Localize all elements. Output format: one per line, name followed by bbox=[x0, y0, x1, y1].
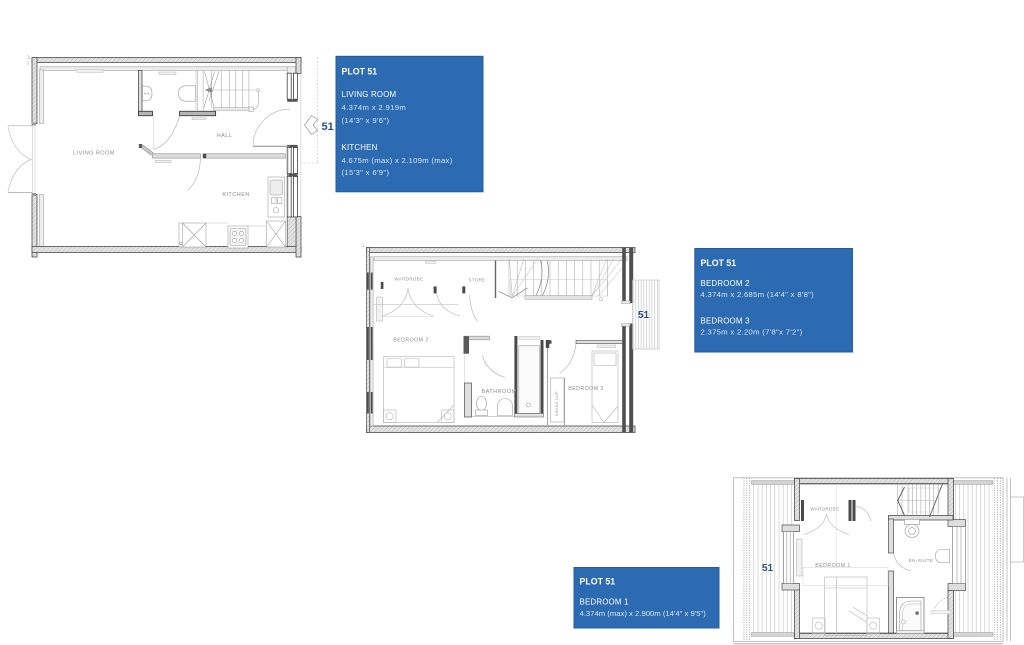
svg-text:KITCHEN: KITCHEN bbox=[222, 192, 249, 198]
svg-text:WARDROBE: WARDROBE bbox=[811, 507, 840, 512]
svg-text:EN-SUITE: EN-SUITE bbox=[909, 558, 934, 563]
svg-text:PLOT 51: PLOT 51 bbox=[342, 67, 378, 77]
svg-text:BATHROOM: BATHROOM bbox=[481, 389, 516, 395]
svg-text:KITCHEN: KITCHEN bbox=[342, 143, 378, 152]
svg-text:STORE: STORE bbox=[468, 278, 485, 283]
svg-text:(14'3" x 9'6"): (14'3" x 9'6") bbox=[342, 116, 390, 125]
svg-text:HALL: HALL bbox=[217, 133, 233, 139]
svg-text:LIVING ROOM: LIVING ROOM bbox=[342, 90, 397, 99]
svg-text:51: 51 bbox=[638, 310, 650, 321]
svg-text:4.374m x 2.685m (14'4" x 8'8"): 4.374m x 2.685m (14'4" x 8'8") bbox=[701, 290, 815, 299]
svg-text:4.374m x 2.919m: 4.374m x 2.919m bbox=[342, 103, 407, 112]
svg-text:WARDROBE: WARDROBE bbox=[395, 277, 424, 282]
svg-text:BEDROOM 3: BEDROOM 3 bbox=[701, 317, 751, 326]
svg-text:BEDROOM 1: BEDROOM 1 bbox=[815, 563, 850, 569]
svg-text:2.375m x 2.20m (7'8"x 7'2"): 2.375m x 2.20m (7'8"x 7'2") bbox=[701, 328, 803, 337]
svg-text:PLOT 51: PLOT 51 bbox=[580, 577, 616, 587]
svg-text:51: 51 bbox=[762, 563, 774, 574]
svg-text:51: 51 bbox=[322, 121, 334, 133]
svg-text:4.675m (max) x 2.109m (max): 4.675m (max) x 2.109m (max) bbox=[342, 156, 453, 165]
svg-text:4.374m (max) x 2.900m (14'4" x: 4.374m (max) x 2.900m (14'4" x 9'5") bbox=[580, 609, 707, 618]
svg-text:BEDROOM 2: BEDROOM 2 bbox=[393, 338, 428, 344]
svg-text:PLOT 51: PLOT 51 bbox=[701, 258, 737, 268]
svg-text:BEDROOM 1: BEDROOM 1 bbox=[580, 598, 629, 607]
svg-text:BEDROOM 3: BEDROOM 3 bbox=[568, 386, 603, 392]
svg-text:BEDROOM 2: BEDROOM 2 bbox=[701, 279, 750, 288]
svg-text:(15'3" x 6'9"): (15'3" x 6'9") bbox=[342, 168, 390, 177]
svg-text:LIVING ROOM: LIVING ROOM bbox=[73, 151, 115, 157]
svg-text:AIRING CUP: AIRING CUP bbox=[555, 391, 559, 416]
